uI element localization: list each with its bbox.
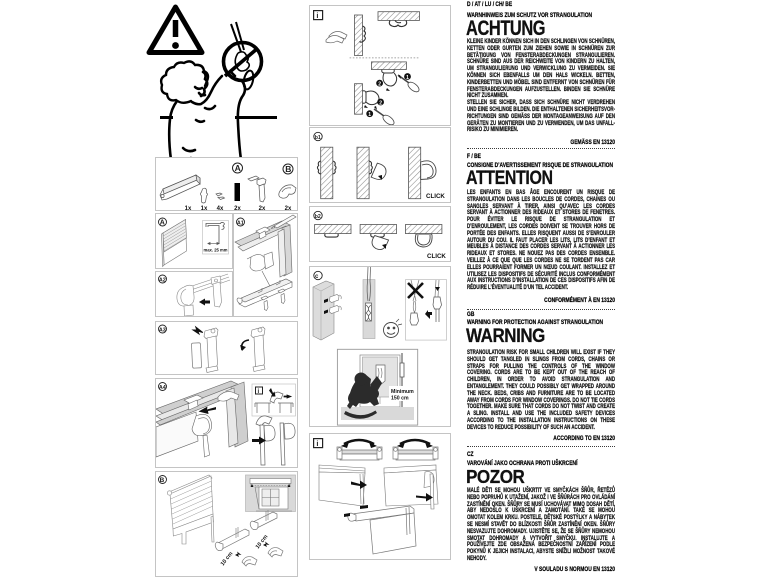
svg-text:CLICK: CLICK	[426, 193, 445, 200]
svg-text:max. 25 mm: max. 25 mm	[204, 248, 228, 253]
svg-text:1: 1	[406, 75, 409, 81]
svg-text:10 cm: 10 cm	[220, 551, 235, 567]
svg-text:1x: 1x	[185, 206, 192, 211]
svg-text:b1: b1	[315, 135, 321, 141]
svg-text:A2: A2	[159, 277, 166, 283]
svg-text:A4: A4	[159, 385, 166, 391]
svg-text:1x: 1x	[201, 206, 208, 211]
svg-text:b2: b2	[315, 214, 321, 220]
svg-text:150 cm: 150 cm	[391, 396, 409, 402]
svg-text:i: i	[316, 439, 318, 448]
svg-text:B: B	[160, 477, 165, 484]
svg-text:2x: 2x	[234, 206, 241, 211]
svg-text:A: A	[235, 163, 241, 173]
svg-text:i: i	[316, 11, 318, 20]
svg-text:Minimum: Minimum	[391, 389, 414, 395]
svg-text:2x: 2x	[259, 206, 266, 211]
svg-text:10 cm: 10 cm	[255, 534, 270, 550]
svg-text:A3: A3	[159, 327, 166, 333]
svg-text:A1: A1	[237, 220, 244, 226]
svg-text:4x: 4x	[217, 206, 224, 211]
svg-text:1: 1	[368, 112, 371, 118]
svg-text:B: B	[285, 164, 291, 174]
svg-text:2x: 2x	[285, 206, 292, 211]
svg-text:CLICK: CLICK	[427, 253, 446, 260]
svg-text:2: 2	[379, 100, 382, 106]
svg-text:2: 2	[378, 82, 381, 88]
svg-text:A: A	[160, 220, 165, 227]
